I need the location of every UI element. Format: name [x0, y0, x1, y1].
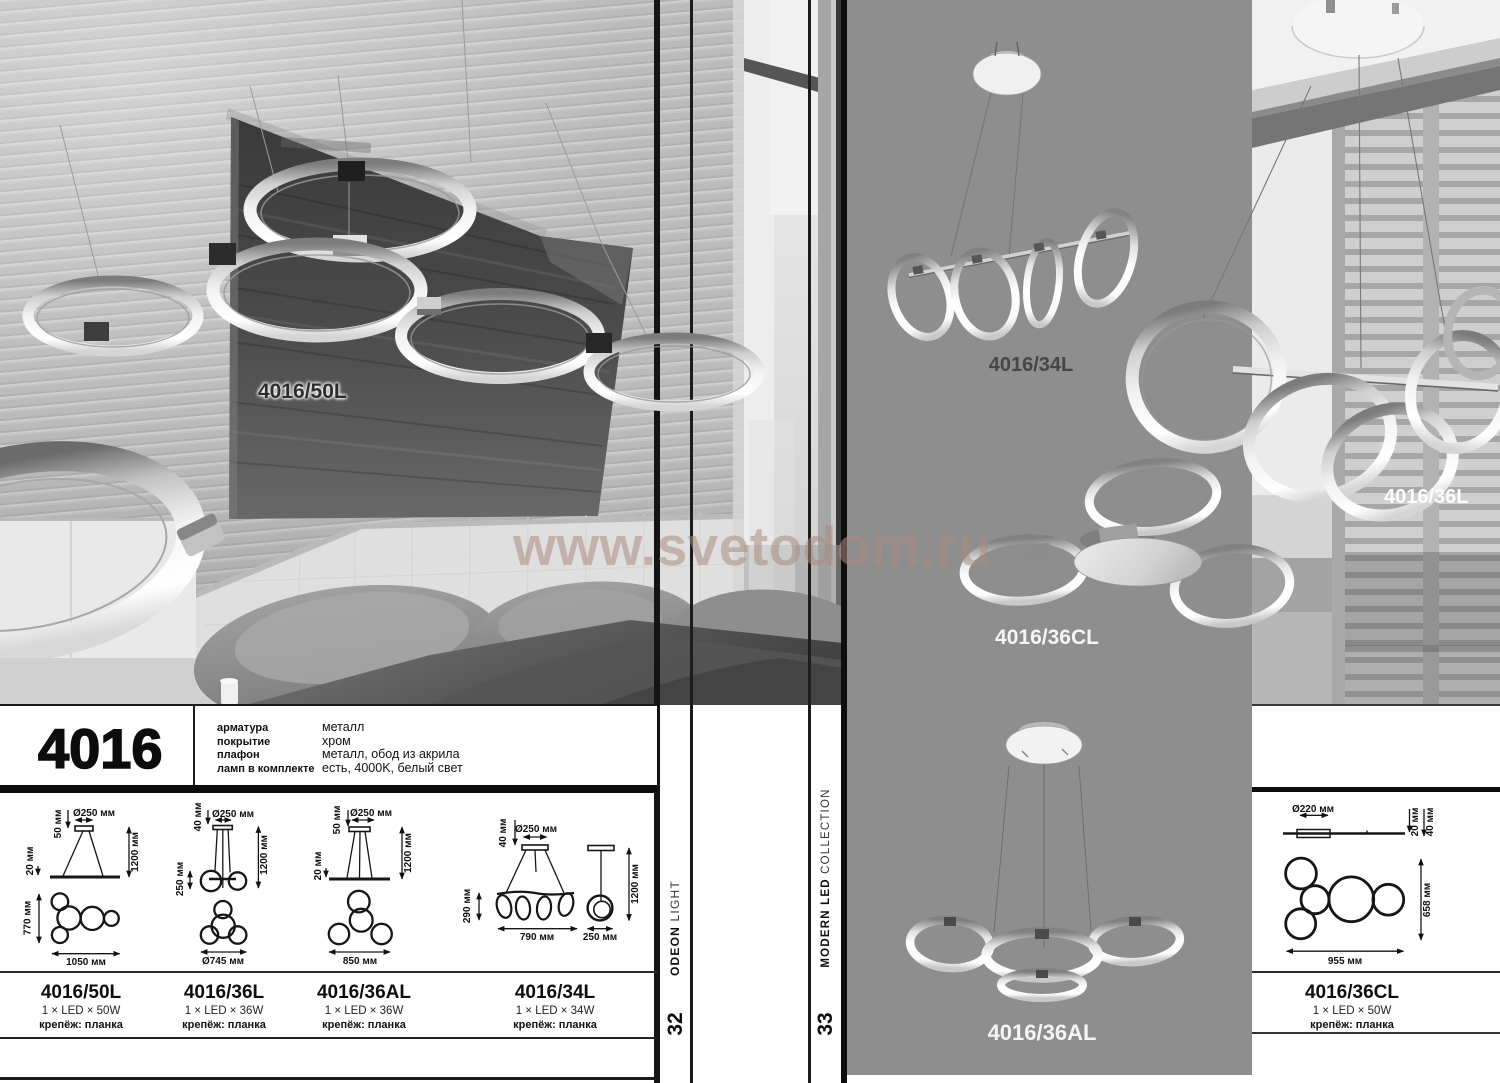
- svg-text:50 мм: 50 мм: [332, 806, 343, 835]
- svg-text:40 мм: 40 мм: [193, 803, 204, 832]
- svg-text:Ø220 мм: Ø220 мм: [1292, 804, 1334, 815]
- svg-text:955 мм: 955 мм: [1328, 956, 1362, 967]
- svg-text:790 мм: 790 мм: [520, 932, 554, 943]
- svg-text:1200 мм: 1200 мм: [630, 864, 641, 904]
- svg-text:290 мм: 290 мм: [462, 889, 473, 923]
- svg-text:Ø745 мм: Ø745 мм: [202, 956, 244, 967]
- svg-text:20 мм: 20 мм: [25, 847, 36, 876]
- svg-text:1050 мм: 1050 мм: [66, 957, 106, 968]
- svg-text:Ø250 мм: Ø250 мм: [73, 808, 115, 819]
- svg-text:20 мм: 20 мм: [313, 852, 324, 881]
- svg-text:658 мм: 658 мм: [1422, 883, 1433, 917]
- svg-text:1200 мм: 1200 мм: [259, 835, 270, 875]
- svg-text:Ø250 мм: Ø250 мм: [350, 808, 392, 819]
- svg-text:1200 мм: 1200 мм: [130, 832, 141, 872]
- svg-text:770 мм: 770 мм: [23, 901, 34, 935]
- svg-text:40 мм: 40 мм: [498, 819, 509, 848]
- svg-text:50 мм: 50 мм: [53, 810, 64, 839]
- svg-text:250 мм: 250 мм: [583, 932, 617, 943]
- svg-text:40 мм: 40 мм: [1425, 808, 1436, 837]
- svg-text:Ø250 мм: Ø250 мм: [212, 809, 254, 820]
- svg-text:250 мм: 250 мм: [175, 862, 186, 896]
- svg-text:1200 мм: 1200 мм: [403, 833, 414, 873]
- svg-text:Ø250 мм: Ø250 мм: [515, 824, 557, 835]
- svg-text:850 мм: 850 мм: [343, 956, 377, 967]
- svg-text:20 мм: 20 мм: [1410, 808, 1421, 837]
